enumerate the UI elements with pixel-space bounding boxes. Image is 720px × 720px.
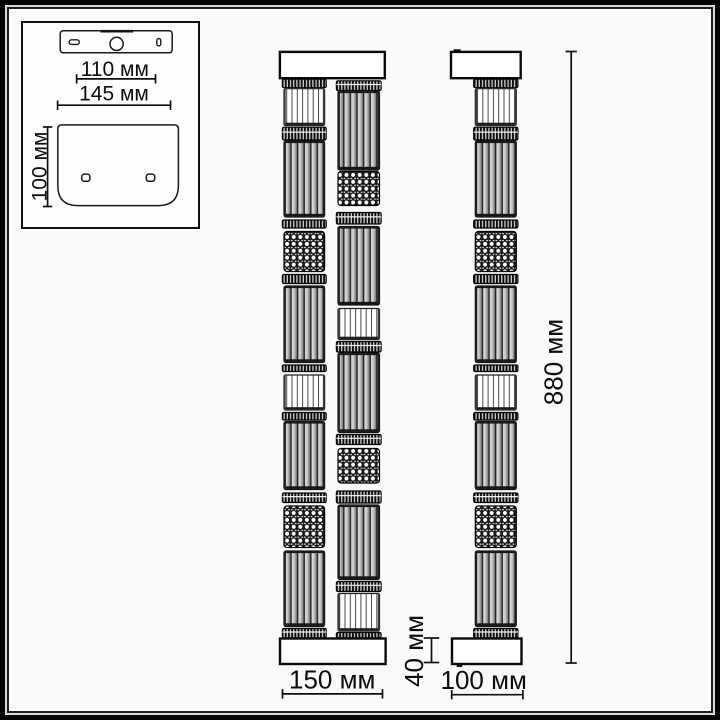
svg-text:40 мм: 40 мм <box>399 615 429 687</box>
svg-text:880 мм: 880 мм <box>539 319 569 405</box>
svg-text:145 мм: 145 мм <box>79 83 149 106</box>
svg-text:100 мм: 100 мм <box>441 665 527 695</box>
svg-text:110 мм: 110 мм <box>81 58 149 81</box>
svg-text:150 мм: 150 мм <box>289 664 375 694</box>
